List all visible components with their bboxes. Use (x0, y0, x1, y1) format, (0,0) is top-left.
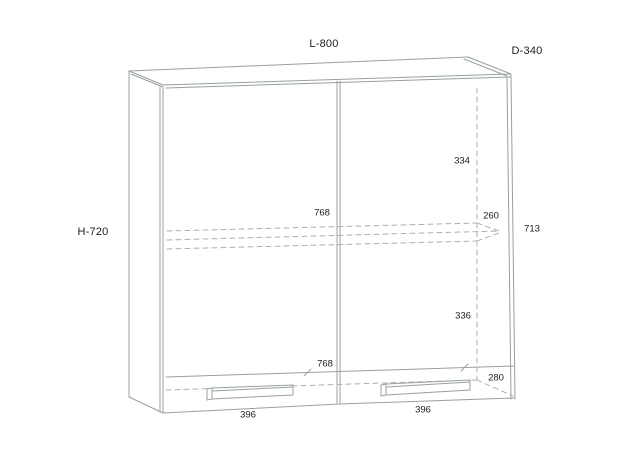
left-door-handle (207, 385, 293, 400)
dim-right-door-width: 396 (415, 405, 431, 416)
dim-bottom-depth: 280 (488, 373, 504, 384)
dim-shelf-depth: 260 (483, 211, 499, 222)
dim-bottom-width: 768 (317, 359, 333, 370)
label-overall-depth: D-340 (512, 45, 543, 57)
label-overall-width: L-800 (309, 38, 338, 50)
label-overall-height: H-720 (78, 226, 109, 238)
cabinet-technical-drawing: L-800 D-340 H-720 334 768 260 713 336 76… (0, 0, 629, 472)
dim-shelf-width: 768 (314, 208, 330, 219)
dim-interior-upper-height: 334 (454, 156, 470, 167)
dim-left-door-width: 396 (240, 410, 256, 421)
dim-interior-lower-height: 336 (455, 311, 471, 322)
dim-door-height: 713 (524, 224, 540, 235)
